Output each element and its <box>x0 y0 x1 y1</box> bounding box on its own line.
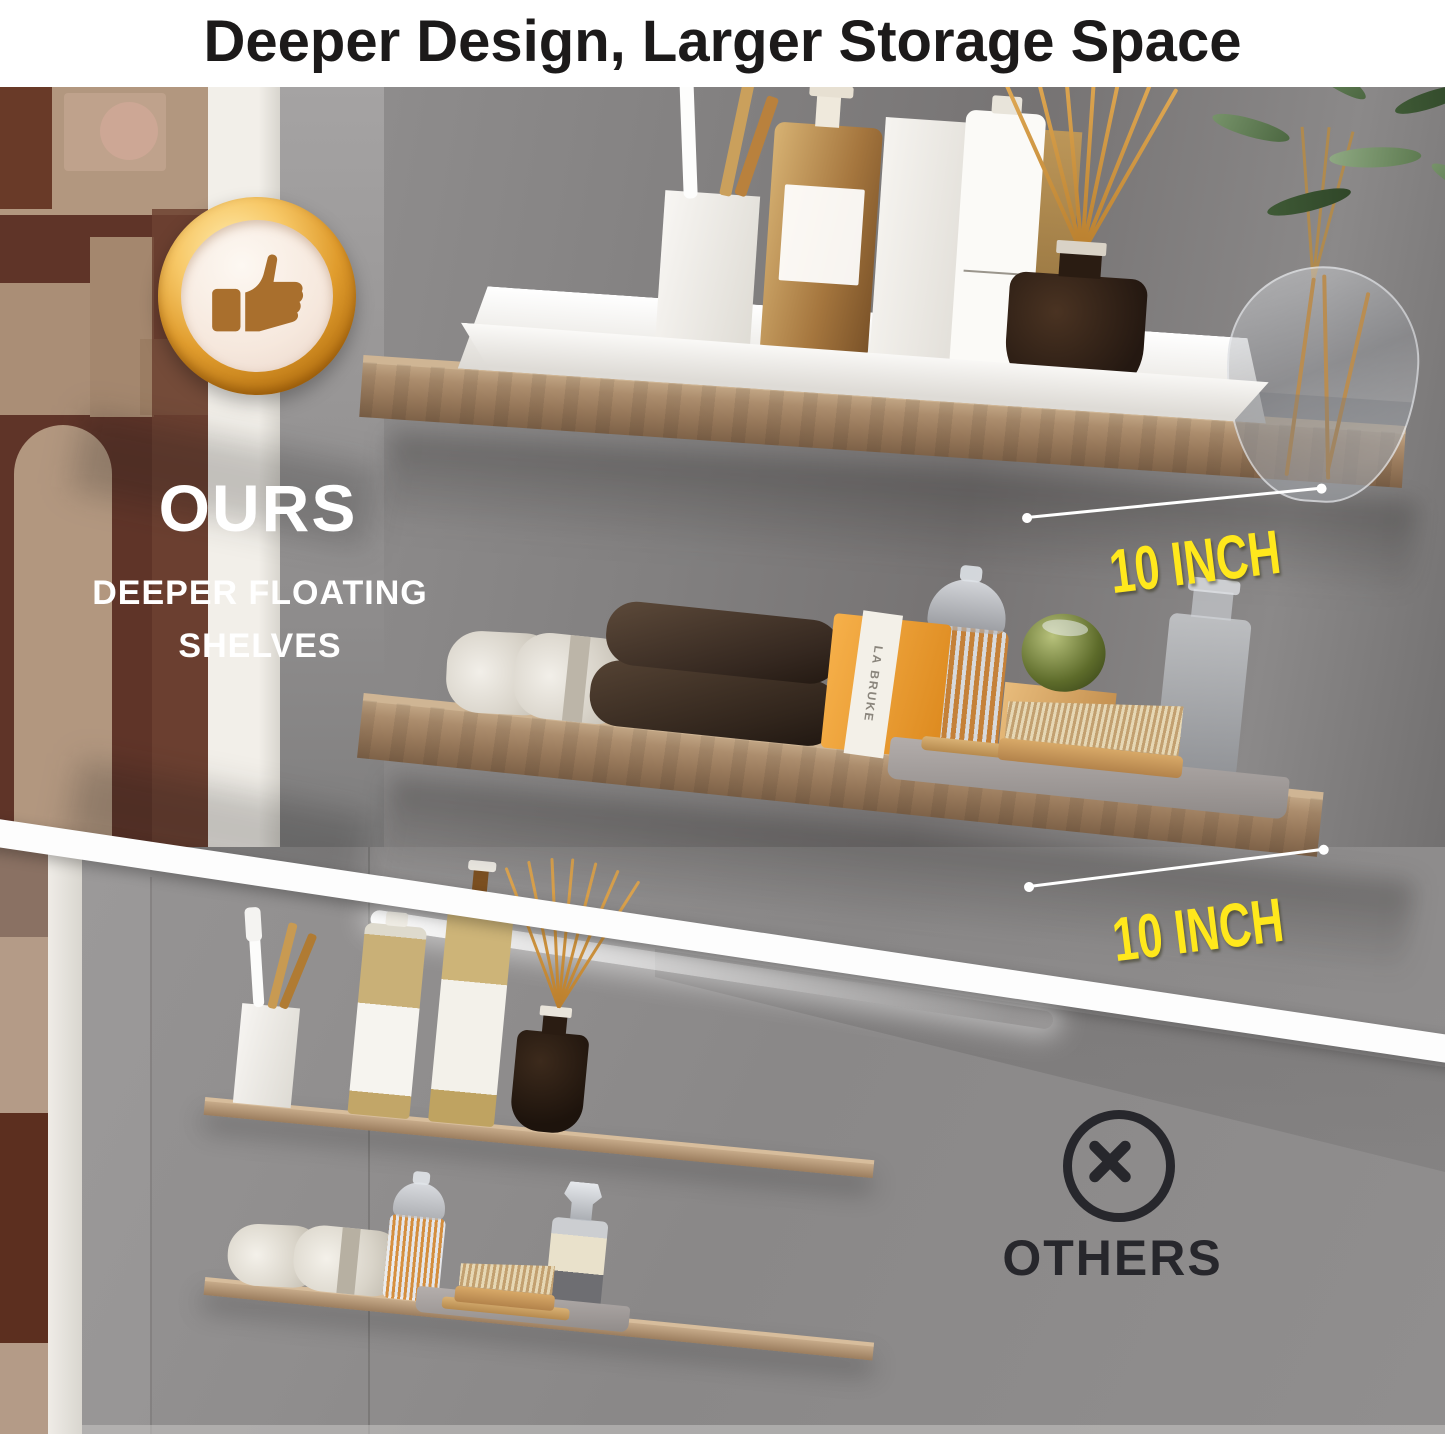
amber-pump-bottle <box>760 121 883 356</box>
thumbs-up-icon <box>198 237 316 355</box>
art-shape <box>0 283 92 415</box>
wall-panel-highlight <box>82 827 150 1434</box>
toothbrush-cup <box>233 1003 300 1108</box>
ours-subtitle-line1: DEEPER FLOATING <box>10 574 510 613</box>
ours-subtitle-line2: SHELVES <box>10 627 510 666</box>
art-shape <box>0 845 48 937</box>
art-shape <box>0 87 52 209</box>
art-shape <box>0 1113 48 1343</box>
product-infographic: Deeper Design, Larger Storage Space <box>0 0 1445 1434</box>
soap-box-brand-text: LA BRUKE <box>861 645 886 724</box>
ours-label: OURS <box>38 470 478 546</box>
floor-edge <box>0 1425 1445 1434</box>
page-title: Deeper Design, Larger Storage Space <box>0 8 1445 75</box>
wall-panel-seam <box>150 877 152 1434</box>
comparison-photo: OTHERS <box>0 87 1445 1434</box>
reed-diffuser-bottle <box>509 1029 590 1135</box>
others-label: OTHERS <box>990 1229 1235 1287</box>
toothbrush-cup <box>655 190 760 351</box>
gold-badge <box>158 197 356 395</box>
art-shape <box>64 93 166 171</box>
wall-trim-lower <box>48 845 82 1434</box>
circle-cross-icon <box>1063 1110 1175 1222</box>
header-bar: Deeper Design, Larger Storage Space <box>0 0 1445 87</box>
bottle-label <box>779 184 865 285</box>
wall-art-lower <box>0 845 48 1434</box>
